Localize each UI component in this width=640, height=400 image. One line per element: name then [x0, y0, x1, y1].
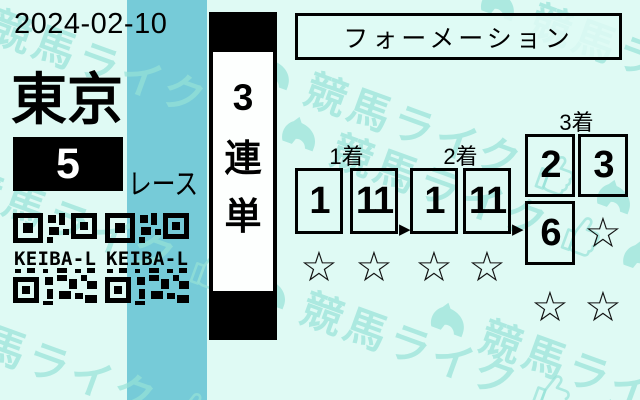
qr-label: KEIBA-L: [106, 248, 188, 270]
race-label: レース: [128, 161, 198, 203]
star-placeholder: ☆: [463, 246, 511, 288]
qr-label: KEIBA-L: [14, 248, 96, 270]
horse-number-box: 3: [578, 134, 628, 197]
arrow-right-icon: ▶: [399, 222, 411, 237]
star-placeholder: ☆: [578, 212, 628, 254]
bet-type-bottom-bar: [209, 295, 277, 340]
star-placeholder: ☆: [295, 246, 343, 288]
star-placeholder: ☆: [578, 286, 628, 328]
bet-type-char: 3: [213, 79, 273, 116]
arrow-right-icon: ▶: [512, 222, 524, 237]
horse-number-box: 6: [525, 201, 575, 265]
bet-type-panel: 3 連 単: [209, 48, 277, 295]
watermark-text: 競馬ライク: [293, 275, 529, 400]
thumbs-up-icon: [526, 366, 585, 400]
method-header: フォーメーション: [295, 13, 622, 60]
race-number-box: 5: [13, 137, 123, 191]
qr-code-left: KEIBA-L: [13, 213, 98, 305]
horse-head-icon: [424, 296, 474, 344]
horse-number-box: 1: [295, 168, 343, 234]
qr-code-right: KEIBA-L: [105, 213, 190, 305]
bet-type-top-bar: [209, 12, 277, 48]
place-label-1st: 1着: [295, 139, 398, 171]
betting-ticket: 競馬ライク 競馬ライク 競馬ライク 競馬ライク 競馬ライク 競馬ライク: [0, 0, 640, 400]
star-placeholder: ☆: [410, 246, 458, 288]
bet-type-box: 3 連 単: [209, 12, 277, 340]
horse-head-icon: [586, 392, 636, 400]
bet-type-char: 連: [213, 140, 273, 177]
horse-number-box: 2: [525, 134, 575, 197]
venue-name: 東京: [11, 72, 123, 128]
star-placeholder: ☆: [350, 246, 398, 288]
place-label-3rd: 3着: [525, 105, 628, 137]
race-date: 2024-02-10: [14, 8, 167, 41]
bet-type-char: 単: [213, 198, 273, 235]
place-label-2nd: 2着: [410, 139, 511, 171]
star-placeholder: ☆: [525, 286, 575, 328]
horse-number-box: 11: [350, 168, 398, 234]
horse-number-box: 11: [463, 168, 511, 234]
race-number: 5: [56, 140, 80, 189]
horse-number-box: 1: [410, 168, 458, 234]
